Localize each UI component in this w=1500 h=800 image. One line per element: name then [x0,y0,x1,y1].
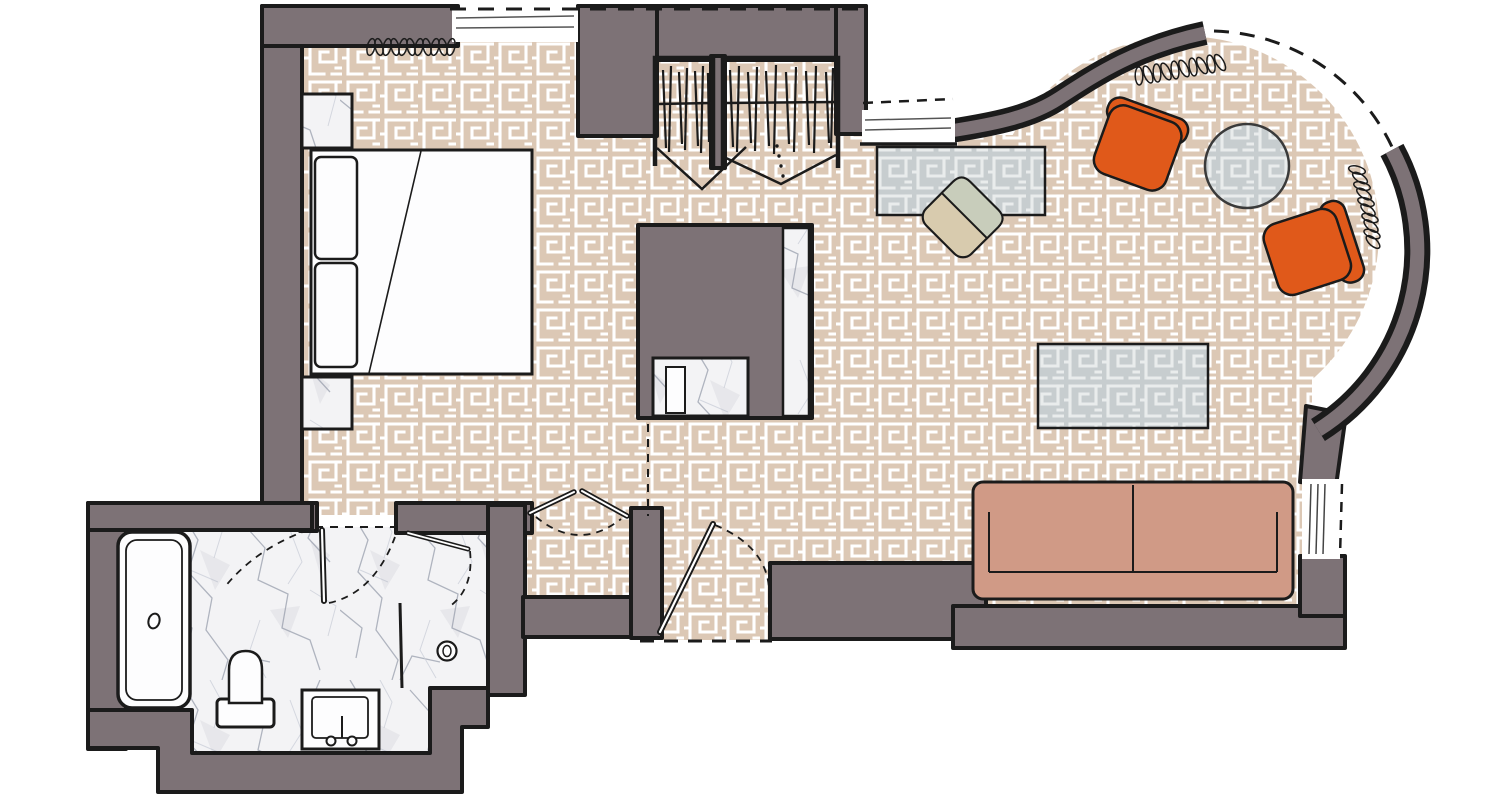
bathtub [118,532,190,708]
wardrobe-right-pillar [836,6,866,134]
entry-left-wall [631,508,662,638]
sink-basin [312,697,368,738]
double-bed [311,150,532,374]
vanity-sink [302,690,379,749]
desk-window [862,110,955,144]
sofa-window-dash [1340,484,1342,556]
wardrobe-1-clothes [663,66,709,153]
sofa-window [1302,479,1340,559]
faucet-handle-right [348,737,357,746]
nightstand-top [302,94,352,148]
bathroom-door [322,530,324,601]
vestibule-bottom-wall [523,597,635,637]
bedroom-left-wall [262,6,302,522]
wardrobe-left-pillar [578,6,657,136]
two-seat-sofa [973,482,1293,599]
pillow-2 [315,263,357,367]
bathroom-right-wall [488,505,525,695]
toilet-bowl [229,651,262,703]
marble-ledge [783,228,809,416]
shower-drain-inner [443,646,451,657]
glass-coffee-table [1038,344,1208,428]
wardrobe-2-rod [726,102,835,103]
desk-window-dash [863,99,953,103]
faucet-handle-left [327,737,336,746]
floor-plan-drawing [0,0,1500,800]
shower-glass-partition [400,603,402,688]
minibar-door [666,367,685,413]
pillow-1 [315,157,357,259]
floor-plan-canvas [0,0,1500,800]
living-right-lower-wall [1300,556,1345,616]
bathroom-top-wall [88,503,312,530]
round-side-table [1205,124,1289,208]
bedroom-window [452,8,578,42]
living-bottom-wall [953,606,1345,648]
nightstand-bottom [302,377,352,429]
